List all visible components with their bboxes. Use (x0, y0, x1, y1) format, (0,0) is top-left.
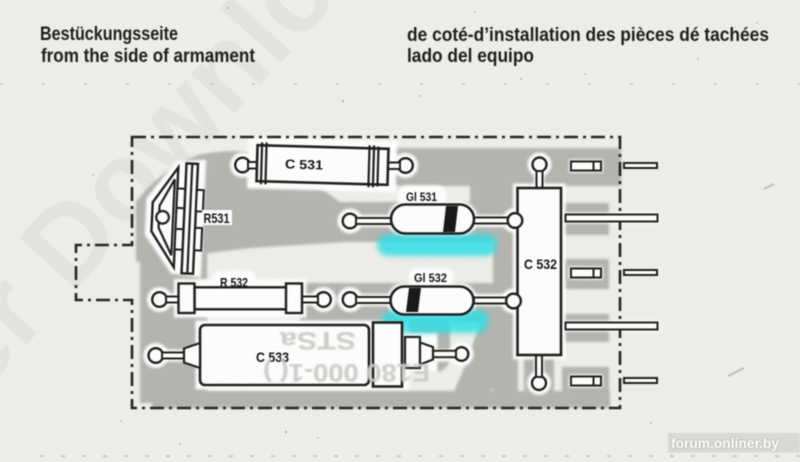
svg-text:forum.onliner.by: forum.onliner.by (671, 436, 779, 451)
